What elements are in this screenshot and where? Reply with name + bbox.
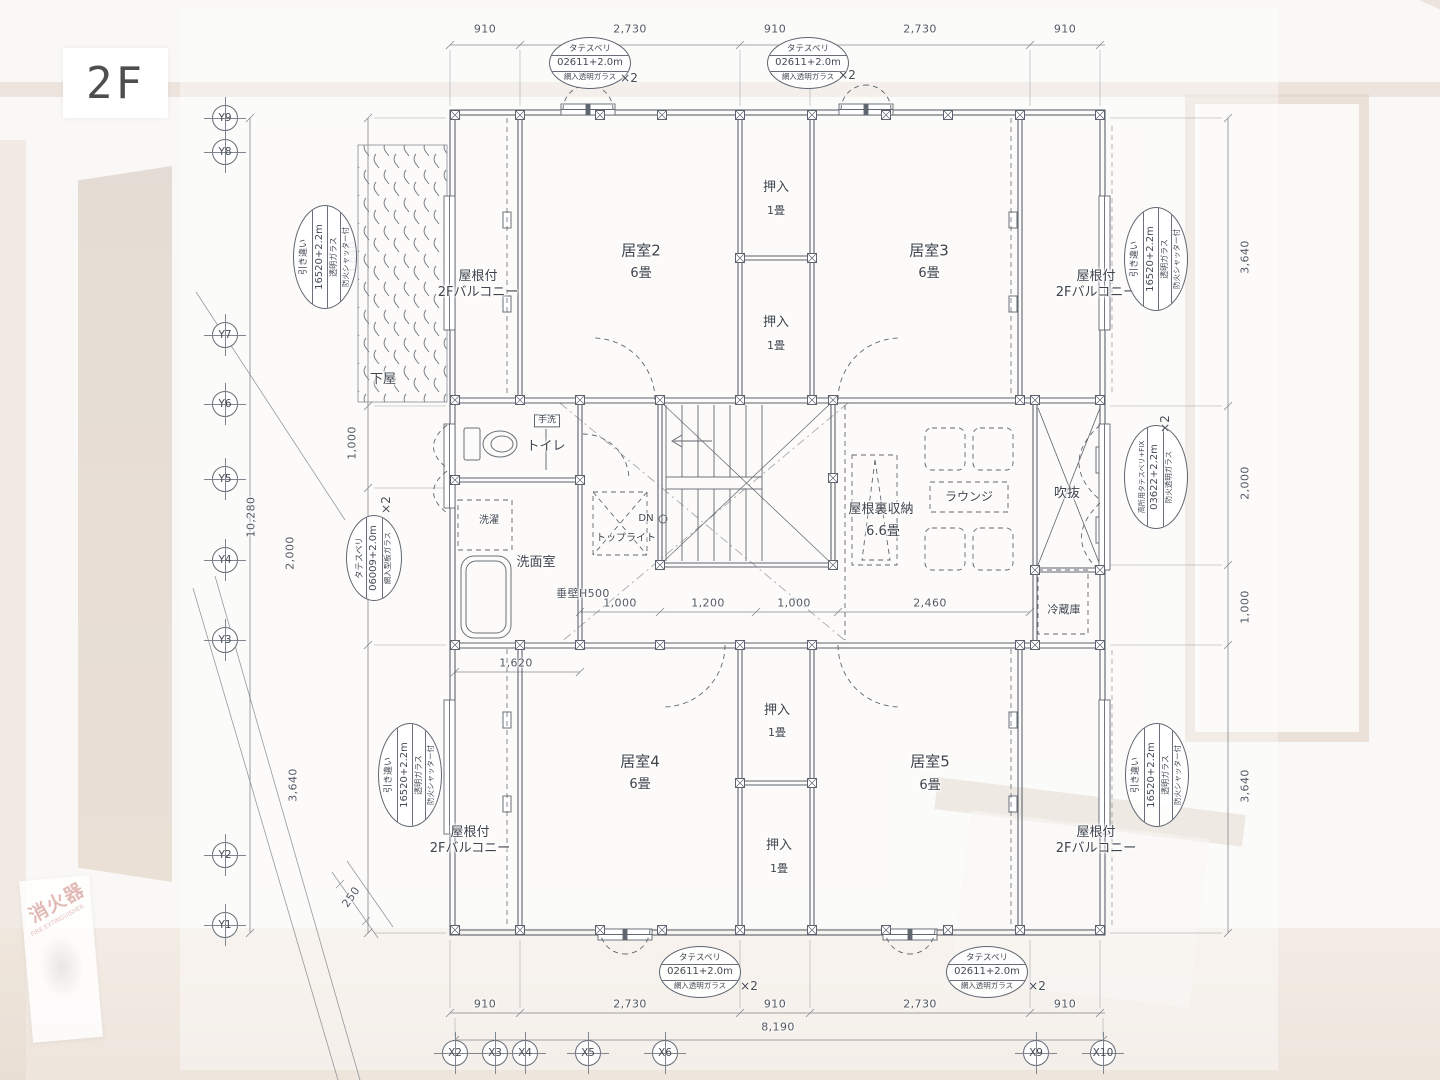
window-stamp-right-bottom: 引き違い16520+2.2m 透明ガラス防火シャッター付 bbox=[1125, 723, 1189, 827]
fixtures bbox=[461, 212, 1106, 812]
room3-size: 6畳 bbox=[918, 266, 939, 282]
room5-name: 居室5 bbox=[910, 753, 950, 772]
window-stamp-right-middle: 高所用タテスベリ+FIX03622+2.2m防火透明ガラス bbox=[1124, 425, 1188, 529]
grid-bubble-y5: Y5 bbox=[212, 466, 238, 492]
dim-left-2: 1,000 bbox=[346, 426, 359, 460]
walls bbox=[450, 110, 1105, 935]
dim-top-1: 910 bbox=[474, 23, 496, 36]
attic-name: 屋根裏収納 bbox=[848, 502, 913, 518]
window-stamp-top-right: タテスベリ02611+2.0m網入透明ガラス bbox=[767, 37, 849, 89]
room2-size: 6畳 bbox=[630, 266, 651, 282]
dim-right-1: 3,640 bbox=[1239, 240, 1252, 274]
fridge-label: 冷蔵庫 bbox=[1048, 603, 1081, 617]
closet-bottom-2-name: 押入 bbox=[766, 838, 792, 854]
dim-left-total: 10,280 bbox=[245, 497, 258, 538]
dim-top-2: 2,730 bbox=[613, 23, 647, 36]
label-tarekabe: 垂壁H500 bbox=[556, 585, 610, 601]
wall-posts bbox=[451, 111, 1105, 935]
void-label: 吹抜 bbox=[1054, 486, 1080, 502]
dim-left-4: 3,640 bbox=[287, 768, 300, 802]
window-stamp-right-top: 引き違い16520+2.2m 透明ガラス防火シャッター付 bbox=[1124, 207, 1188, 311]
floorplan-overlay-page: 消火器 FIRE EXTINGUISHER bbox=[0, 0, 1440, 1080]
toplight-label: トップライト bbox=[596, 533, 656, 546]
dim-right-4: 3,640 bbox=[1239, 769, 1252, 803]
grid-bubble-x4: X4 bbox=[512, 1040, 538, 1066]
grid-bubble-x10: X10 bbox=[1090, 1040, 1116, 1066]
toilet-label: トイレ bbox=[526, 439, 565, 455]
window-stamp-bottom-left: タテスベリ02611+2.0m網入透明ガラス bbox=[659, 946, 741, 998]
grid-bubble-x5: X5 bbox=[575, 1040, 601, 1066]
window-stamp-bottom-left-mult: ×2 bbox=[740, 979, 758, 993]
lounge-label: ラウンジ bbox=[945, 490, 993, 505]
balcony-bottom-left-label: 屋根付2Fバルコニー bbox=[430, 825, 511, 858]
window-stamp-left-middle: タテスベリ06009+2.0m網入型板ガラス bbox=[346, 515, 402, 601]
window-stamp-right-middle-mult: ×2 bbox=[1158, 415, 1172, 433]
room4-name: 居室4 bbox=[620, 753, 660, 772]
grid-bubble-y3: Y3 bbox=[212, 627, 238, 653]
grid-bubble-x9: X9 bbox=[1023, 1040, 1049, 1066]
dim-bottom-1: 910 bbox=[474, 998, 496, 1011]
dim-right-2: 2,000 bbox=[1239, 466, 1252, 500]
grid-bubble-y6: Y6 bbox=[212, 391, 238, 417]
dim-bottom-2: 2,730 bbox=[613, 998, 647, 1011]
grid-bubble-y2: Y2 bbox=[212, 842, 238, 868]
closet-top-1-size: 1畳 bbox=[767, 204, 785, 218]
closet-top-2-name: 押入 bbox=[763, 315, 789, 331]
window-stamp-top-left-mult: ×2 bbox=[620, 71, 638, 85]
laundry-label: 洗濯 bbox=[479, 515, 499, 528]
windows bbox=[444, 104, 1110, 940]
window-stamp-bottom-right-mult: ×2 bbox=[1028, 979, 1046, 993]
dim-closet-width: 1,620 bbox=[499, 657, 533, 670]
geya-label: 下屋 bbox=[370, 372, 396, 388]
dim-right-3: 1,000 bbox=[1239, 590, 1252, 624]
closet-top-1-name: 押入 bbox=[763, 180, 789, 196]
balcony-top-left-label: 屋根付2Fバルコニー bbox=[438, 269, 519, 302]
grid-bubble-y7: Y7 bbox=[212, 322, 238, 348]
window-stamp-left-top: 引き違い16520+2.2m 透明ガラス防火シャッター付 bbox=[293, 205, 357, 309]
closet-bottom-2-size: 1畳 bbox=[770, 862, 788, 876]
balcony-bottom-right-label: 屋根付2Fバルコニー bbox=[1056, 825, 1137, 858]
geya-hatch-area bbox=[358, 145, 447, 402]
room3-name: 居室3 bbox=[909, 242, 949, 261]
dim-hall-3: 1,000 bbox=[777, 597, 811, 610]
room4-size: 6畳 bbox=[629, 777, 650, 793]
closet-top-2-size: 1畳 bbox=[767, 339, 785, 353]
closet-bottom-1-name: 押入 bbox=[764, 703, 790, 719]
dim-left-3: 2,000 bbox=[284, 536, 297, 570]
dim-top-3: 910 bbox=[764, 23, 786, 36]
grid-bubble-x2: X2 bbox=[442, 1040, 468, 1066]
dim-top-4: 2,730 bbox=[903, 23, 937, 36]
grid-bubble-y1: Y1 bbox=[212, 912, 238, 938]
dim-bottom-4: 2,730 bbox=[903, 998, 937, 1011]
window-stamp-left-bottom: 引き違い16520+2.2m 透明ガラス防火シャッター付 bbox=[378, 723, 442, 827]
window-stamp-left-middle-mult: ×2 bbox=[379, 496, 393, 514]
dn-label: DN bbox=[638, 513, 653, 526]
window-stamp-bottom-right: タテスベリ02611+2.0m網入透明ガラス bbox=[946, 946, 1028, 998]
dim-hall-2: 1,200 bbox=[691, 597, 725, 610]
dim-bottom-5: 910 bbox=[1054, 998, 1076, 1011]
washroom-label: 洗面室 bbox=[516, 555, 555, 571]
dim-hall-4: 2,460 bbox=[913, 597, 947, 610]
room2-name: 居室2 bbox=[621, 242, 661, 261]
window-stamp-top-left: タテスベリ02611+2.0m網入透明ガラス bbox=[549, 37, 631, 89]
window-stamp-top-right-mult: ×2 bbox=[838, 68, 856, 82]
grid-bubble-y4: Y4 bbox=[212, 547, 238, 573]
grid-bubble-y9: Y9 bbox=[212, 105, 238, 131]
attic-size: 6.6畳 bbox=[866, 524, 900, 540]
dim-bottom-3: 910 bbox=[764, 998, 786, 1011]
room5-size: 6畳 bbox=[919, 778, 940, 794]
grid-bubble-y8: Y8 bbox=[212, 139, 238, 165]
closet-bottom-1-size: 1畳 bbox=[768, 726, 786, 740]
dim-top-5: 910 bbox=[1054, 23, 1076, 36]
handwash-label: 手洗 bbox=[534, 414, 560, 427]
dim-bottom-total: 8,190 bbox=[761, 1021, 795, 1034]
balcony-top-right-label: 屋根付2Fバルコニー bbox=[1056, 269, 1137, 302]
grid-bubble-x6: X6 bbox=[652, 1040, 678, 1066]
